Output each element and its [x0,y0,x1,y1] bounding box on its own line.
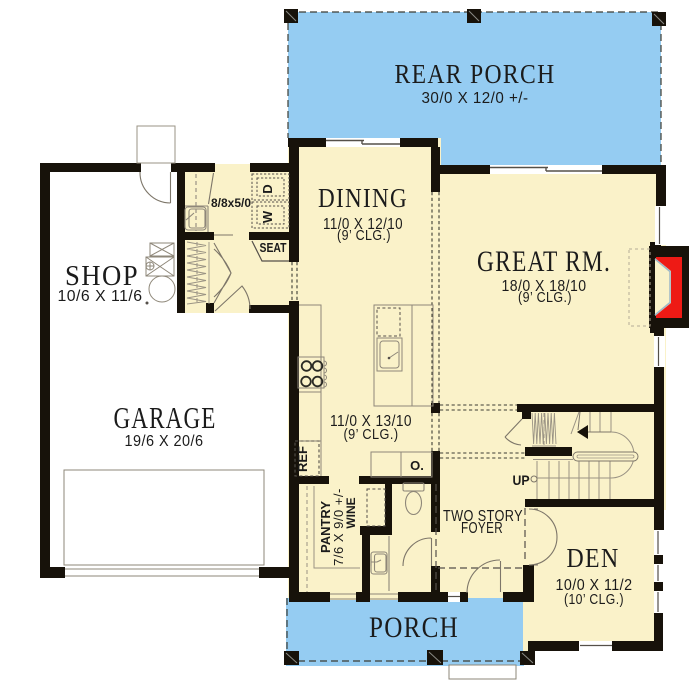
svg-text:(9’ CLG.): (9’ CLG.) [344,427,399,443]
svg-text:D: D [260,184,275,193]
svg-text:(9’ CLG.): (9’ CLG.) [518,290,572,306]
svg-text:DEN: DEN [567,543,620,573]
svg-text:O.: O. [410,458,424,473]
svg-text:8/8x5/0: 8/8x5/0 [211,196,251,210]
svg-text:PORCH: PORCH [369,611,459,644]
svg-text:(10’ CLG.): (10’ CLG.) [564,592,624,608]
svg-text:19/6 X 20/6: 19/6 X 20/6 [125,433,204,450]
svg-text:REAR PORCH: REAR PORCH [395,59,556,89]
svg-text:10/6 X 11/6: 10/6 X 11/6 [58,288,143,305]
svg-text:SEAT: SEAT [260,240,287,255]
svg-text:UP: UP [513,472,530,488]
svg-text:W: W [260,210,275,223]
svg-text:FOYER: FOYER [461,520,503,537]
svg-text:DINING: DINING [318,183,408,213]
svg-text:REF: REF [295,446,310,472]
svg-text:30/0 X 12/0 +/-: 30/0 X 12/0 +/- [422,90,529,107]
svg-text:(9’ CLG.): (9’ CLG.) [337,228,391,244]
svg-text:WINE: WINE [344,497,358,528]
svg-text:GREAT RM.: GREAT RM. [477,245,611,278]
svg-text:GARAGE: GARAGE [114,400,217,435]
svg-text:7/6 X 9/0 +/-: 7/6 X 9/0 +/- [331,488,346,566]
